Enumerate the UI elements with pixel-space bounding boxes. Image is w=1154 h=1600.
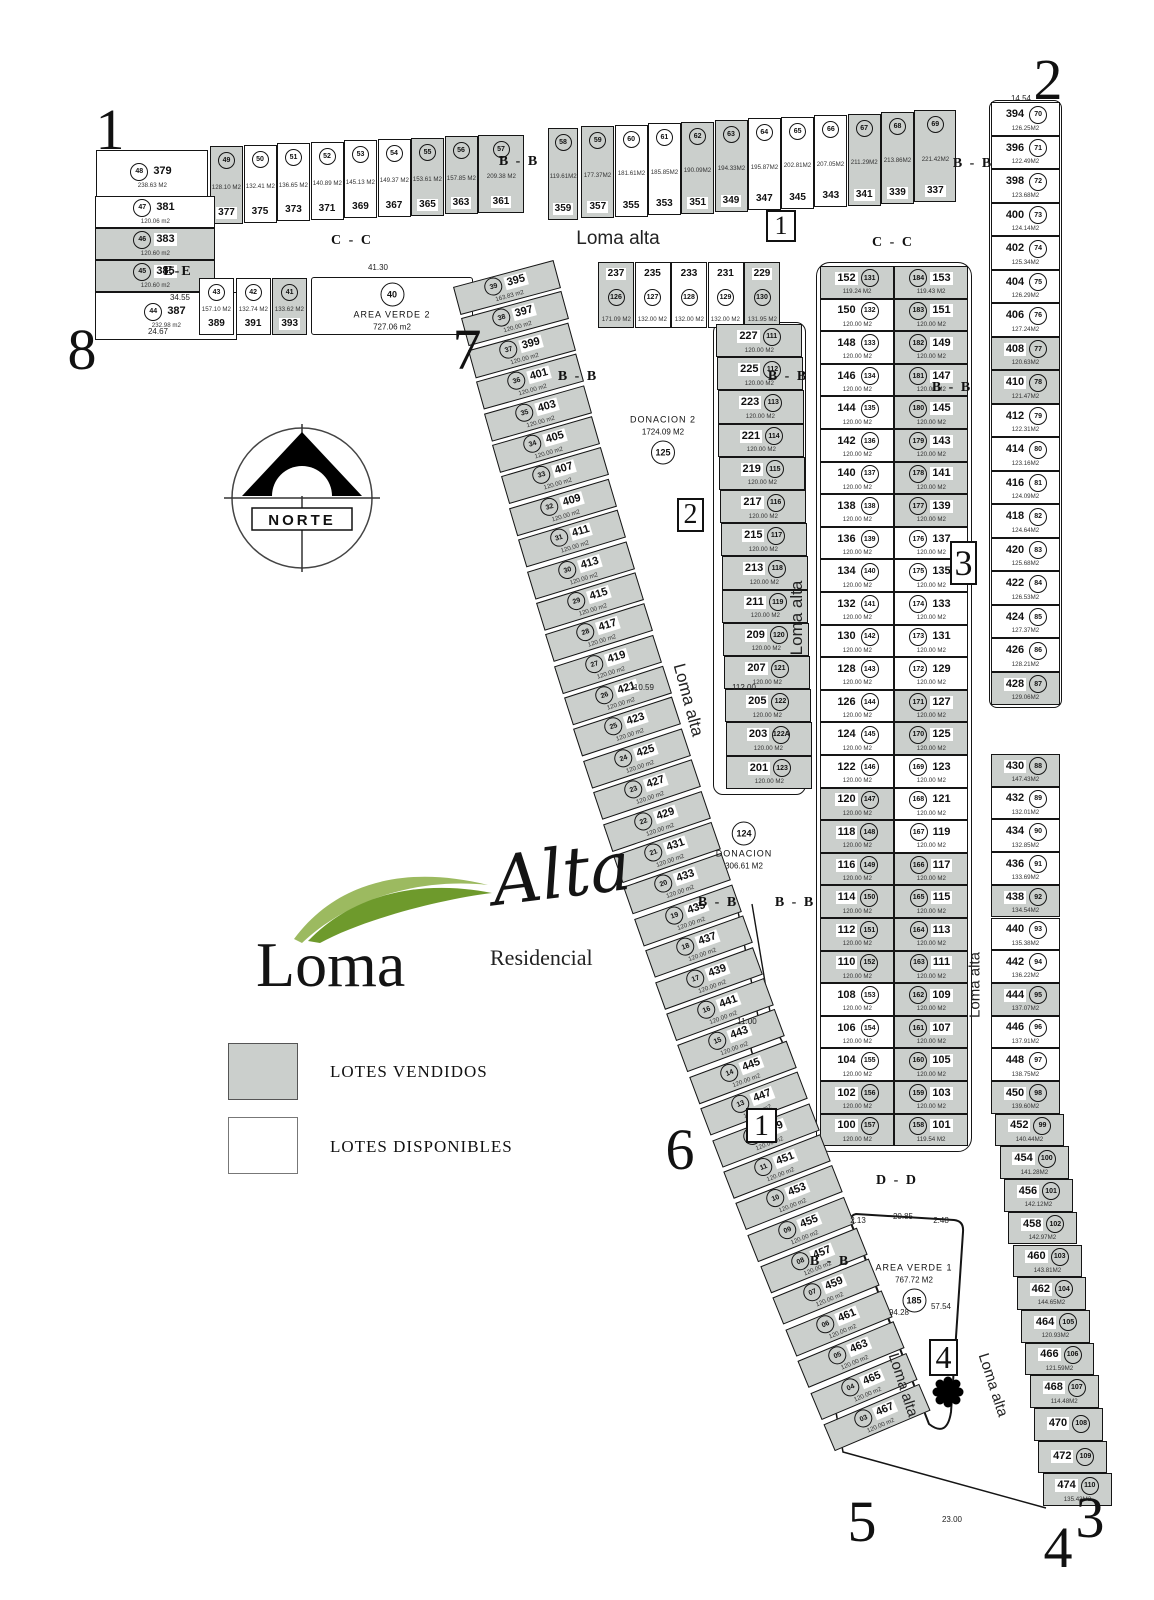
lot-number: 113 [931,924,953,937]
lot-124: 124145120.00 M2 [820,722,894,755]
street-label: Loma alta [967,952,984,1018]
lot-area: 120.00 M2 [916,1103,945,1110]
area-donacion: 124DONACION306.61 M2 [716,822,773,871]
lot-number: 130 [835,630,857,643]
lot-area: 120.00 M2 [916,647,945,654]
lot-number: 438 [1004,891,1026,904]
lot-221: 221114120.00 M2 [718,424,804,457]
lot-circle-id: 183 [909,302,927,320]
lot-402: 40274125.34M2 [991,236,1060,270]
lot-number: 116 [836,859,858,872]
lot-number: 120 [835,793,857,806]
lot-circle-id: 164 [910,921,928,939]
lot-area: 120.00 M2 [749,546,778,553]
lot-circle-id: 131 [861,269,879,287]
lot-number: 413 [577,554,602,573]
lot-circle-id: 116 [767,494,785,512]
lot-136: 136139120.00 M2 [820,527,894,560]
lot-area: 171.09 M2 [601,316,630,323]
lot-436: 43691133.69M2 [991,852,1060,885]
lot-area: 120.00 M2 [916,843,945,850]
lot-area: 131.95 M2 [747,316,776,323]
lot-233: 233128132.00 M2 [671,262,707,328]
lot-412: 41279122.31M2 [991,404,1060,438]
lot-424: 42485127.37M2 [991,605,1060,639]
lot-404: 40475126.29M2 [991,270,1060,304]
lot-circle-id: 134 [861,367,879,385]
lot-107: 161107120.00 M2 [894,1016,968,1049]
lot-circle-id: 173 [909,628,927,646]
lot-circle-id: 69 [927,116,944,133]
dimension-label: 94.28 [889,1309,909,1317]
lot-440: 44093135.38M2 [991,918,1060,951]
lot-number: 451 [773,1149,799,1169]
lot-area: 120.00 M2 [842,1136,871,1143]
lot-146: 146134120.00 M2 [820,364,894,397]
lot-area: 128.21M2 [1012,661,1039,668]
lot-area: 120.00 M2 [916,549,945,556]
lot-circle-id: 168 [909,791,927,809]
lot-circle-id: 92 [1029,888,1047,906]
lot-circle-id: 49 [218,152,235,169]
lot-area: 185.85M2 [651,169,678,176]
lot-circle-id: 73 [1029,206,1047,224]
lot-number: 410 [1004,376,1026,389]
lot-area: 114.48M2 [1051,1398,1078,1405]
lot-area: 120.00 M2 [842,940,871,947]
lot-area: 120.00 M2 [916,1006,945,1013]
lot-438: 43892134.54M2 [991,885,1060,918]
lot-area: 122.49M2 [1012,158,1039,165]
lot-number: 381 [154,201,176,214]
lot-area: 120.00 M2 [842,843,871,850]
section-label: B - B [953,157,993,171]
logo-residencial-text: Residencial [490,947,593,969]
lot-number: 207 [745,662,767,675]
lot-number: 349 [721,195,742,207]
lot-circle-id: 113 [764,394,782,412]
lot-area: 120.00 M2 [916,810,945,817]
lot-number: 458 [1021,1218,1043,1231]
lot-223: 223113120.00 M2 [718,390,804,423]
lot-circle-id: 42 [245,284,262,301]
lot-number: 441 [716,992,741,1012]
lot-number: 371 [317,203,338,215]
section-label: D - D [876,1174,918,1188]
lot-351: 62190.09M2351 [681,122,714,214]
lot-circle-id: 157 [861,1117,879,1135]
lot-number: 118 [836,826,858,839]
lot-number: 140 [835,467,857,480]
lot-140: 140137120.00 M2 [820,462,894,495]
lot-115: 165115120.00 M2 [894,885,968,918]
lot-468: 468107114.48M2 [1030,1375,1099,1408]
lot-circle-id: 138 [861,497,879,515]
lot-number: 108 [835,989,857,1002]
lot-number: 353 [654,198,675,210]
lot-area: 124.14M2 [1012,225,1039,232]
lot-circle-id: 153 [861,986,879,1004]
lot-426: 42686128.21M2 [991,638,1060,672]
lot-area: 120.00 M2 [842,1071,871,1078]
lot-number: 146 [835,370,857,383]
lot-area: 202.81M2 [784,162,811,169]
lot-number: 420 [1004,544,1026,557]
lot-number: 104 [835,1054,857,1067]
lot-number: 412 [1004,410,1026,423]
lot-circle-id: 76 [1029,307,1047,325]
lot-number: 205 [746,695,768,708]
lot-circle-id: 165 [910,889,928,907]
lot-circle-id: 174 [909,595,927,613]
lot-number: 343 [821,190,842,202]
lot-number: 442 [1004,956,1026,969]
lot-circle-id: 166 [910,856,928,874]
lot-circle-id: 91 [1029,855,1047,873]
lot-number: 345 [787,192,808,204]
lot-number: 416 [1004,477,1026,490]
lot-area: 132.41 M2 [245,183,274,190]
lot-number: 233 [679,268,700,280]
lot-number: 408 [1004,343,1026,356]
lot-area: 120.00 M2 [916,1038,945,1045]
area-size: 727.06 m2 [373,324,411,332]
lot-number: 422 [1004,577,1026,590]
lot-355: 60181.61M2355 [615,125,648,217]
lot-number: 414 [1004,443,1026,456]
lot-385: 45385120.60 m2 [95,260,215,292]
lot-area: 120.00 M2 [842,419,871,426]
lot-area: 120.93M2 [1042,1332,1069,1339]
lot-number: 144 [835,402,857,415]
lot-138: 138138120.00 M2 [820,494,894,527]
lot-area: 123.68M2 [1012,192,1039,199]
lot-area: 120.00 M2 [842,354,871,361]
lot-349: 63194.33M2349 [715,120,748,212]
lot-414: 41480123.16M2 [991,437,1060,471]
lot-number: 114 [836,891,858,904]
lot-231: 231129132.00 M2 [708,262,744,328]
lot-229: 229130131.95 M2 [744,262,780,328]
lot-134: 134140120.00 M2 [820,559,894,592]
lot-number: 225 [738,363,760,376]
lot-area: 120.00 M2 [842,451,871,458]
lot-number: 363 [451,197,472,209]
lot-number: 446 [1004,1021,1026,1034]
lot-373: 51136.65 M2373 [277,143,310,221]
lot-383: 46383120.60 m2 [95,228,215,260]
lot-area: 157.10 M2 [202,306,231,313]
lot-circle-id: 129 [717,289,734,306]
lot-116: 116149120.00 M2 [820,853,894,886]
lot-number: 437 [694,929,719,949]
logo-loma-text: Loma [256,933,405,997]
lot-circle-id: 63 [723,126,740,143]
lot-circle-id: 48 [130,163,148,181]
lot-circle-id: 156 [861,1084,879,1102]
section-label: B - B [558,370,598,384]
north-arrow: NORTE [222,418,382,578]
lot-circle-id: 99 [1033,1117,1051,1135]
lot-number: 447 [750,1086,776,1106]
lot-number: 429 [653,804,678,824]
lot-circle-id: 121 [771,660,789,678]
lot-area: 120.00 M2 [916,973,945,980]
lot-circle-id: 148 [860,823,878,841]
lot-circle-id: 178 [909,465,927,483]
lot-circle-id: 176 [909,530,927,548]
lot-circle-id: 150 [860,889,878,907]
area-name: DONACION 2 [630,416,696,425]
lot-area: 120.00 M2 [842,321,871,328]
lot-number: 221 [740,430,762,443]
street-label: Loma alta [787,581,807,656]
lot-number: 103 [930,1087,952,1100]
lot-circle-id: 54 [386,145,403,162]
lot-area: 120.00 M2 [755,778,784,785]
lot-circle-id: 97 [1029,1052,1047,1070]
lot-circle-id: 96 [1029,1019,1047,1037]
lot-circle-id: 155 [861,1052,879,1070]
lot-area: 119.24 M2 [843,288,872,295]
lot-area: 120.00 M2 [916,484,945,491]
lot-151: 183151120.00 M2 [894,299,968,332]
lot-number: 133 [930,598,952,611]
dimension-label: 2.13 [850,1217,866,1225]
lot-number: 401 [527,366,552,385]
dimension-label: 24.67 [148,328,168,336]
lot-circle-id: 56 [453,142,470,159]
lot-number: 419 [604,648,629,667]
lot-circle-id: 161 [909,1019,927,1037]
boxed-number: 1 [766,210,796,242]
lot-number: 111 [931,956,952,969]
section-label: B - B [768,370,808,384]
lot-circle-id: 90 [1029,823,1047,841]
lot-circle-id: 144 [861,693,879,711]
lot-circle-id: 181 [909,367,927,385]
lot-area: 120.00 M2 [916,614,945,621]
lot-area: 147.43M2 [1012,776,1039,783]
lot-area: 132.85M2 [1012,842,1039,849]
lot-area: 157.85 M2 [446,175,475,182]
area-size: 306.61 M2 [725,863,763,871]
lot-227: 227111120.00 M2 [716,324,802,357]
lot-450: 45098139.60M2 [991,1081,1060,1114]
lot-number: 149 [930,337,952,350]
lot-number: 134 [835,565,857,578]
lot-369: 53145.13 M2369 [344,140,377,218]
lot-circle-id: 60 [623,131,640,148]
lot-number: 456 [1017,1185,1039,1198]
lot-circle-id: 133 [861,334,879,352]
lot-circle-id: 122A [772,726,790,744]
lot-number: 397 [511,303,536,321]
lot-circle-id: 86 [1029,642,1047,660]
lot-number: 109 [930,989,952,1002]
lot-number: 123 [930,761,952,774]
lot-148: 148133120.00 M2 [820,331,894,364]
lot-area: 120.00 M2 [842,582,871,589]
lot-number: 391 [243,318,264,330]
lot-circle-id: 126 [608,289,625,306]
lot-circle-id: 143 [861,660,879,678]
lot-number: 455 [797,1211,823,1231]
lot-357: 59177.37M2357 [581,126,614,218]
lot-470: 470108 [1034,1408,1103,1441]
lot-area: 221.42M2 [922,156,949,163]
lot-number: 407 [551,460,576,479]
lot-111: 163111120.00 M2 [894,951,968,984]
lot-217: 217116120.00 M2 [720,490,806,523]
lot-number: 121 [930,793,952,806]
lot-circle-id: 106 [1064,1346,1082,1364]
lot-circle-id: 79 [1029,407,1047,425]
lot-area: 126.29M2 [1012,292,1039,299]
lot-number: 415 [586,585,611,604]
section-label: B - B [775,896,815,910]
lot-circle-id: 46 [133,231,151,249]
corner-number: 3 [1076,1489,1105,1547]
lot-circle-id: 105 [1059,1313,1077,1331]
lot-area: 120.00 M2 [750,579,779,586]
lot-area: 120.00 M2 [752,679,781,686]
lot-number: 339 [887,187,908,199]
lot-number: 131 [930,630,952,643]
lot-circle-id: 89 [1029,790,1047,808]
lot-circle-id: 182 [909,334,927,352]
boxed-number: 1 [746,1108,777,1143]
lot-381: 47381120.06 m2 [95,196,215,228]
lot-circle-id: 177 [909,497,927,515]
lot-circle-id: 160 [909,1052,927,1070]
lot-circle-id: 162 [909,986,927,1004]
lot-area: 137.91M2 [1012,1038,1039,1045]
lot-130: 130142120.00 M2 [820,625,894,658]
lot-circle-id: 154 [861,1019,879,1037]
street-label: Loma alta [669,661,708,738]
lot-circle-id: 152 [860,954,878,972]
lot-number: 400 [1004,209,1026,222]
lot-number: 417 [595,616,620,635]
lot-circle-id: 68 [889,118,906,135]
lot-circle-id: 88 [1029,757,1047,775]
lot-circle-id: 180 [909,400,927,418]
lot-452: 45299140.44M2 [995,1114,1064,1147]
lot-number: 112 [836,924,858,937]
lot-area: 119.43 M2 [917,288,946,295]
lot-458: 458102142.97M2 [1008,1212,1077,1245]
lot-345: 65202.81M2345 [781,117,814,209]
lot-area: 120.00 M2 [916,875,945,882]
lot-circle-id: 78 [1029,374,1047,392]
lot-area: 120.00 M2 [754,745,783,752]
lot-circle-id: 108 [1072,1415,1090,1433]
lot-141: 178141120.00 M2 [894,462,968,495]
area-name: AREA VERDE 1 [875,1264,952,1273]
lot-circle-id: 167 [910,823,928,841]
lot-125: 170125120.00 M2 [894,722,968,755]
lot-number: 396 [1004,142,1026,155]
lot-235: 235127132.00 M2 [635,262,671,328]
lot-circle-id: 81 [1029,474,1047,492]
lot-number: 424 [1004,611,1026,624]
plat-map: 48379238.63 M249128.10 M237750132.41 M23… [0,0,1154,1600]
lot-number: 431 [663,835,688,855]
lot-number: 151 [930,304,952,317]
lot-number: 375 [250,206,271,218]
lot-number: 119 [931,826,953,839]
lot-area: 128.10 M2 [212,185,241,192]
lot-number: 211 [744,596,766,609]
lot-number: 138 [835,500,857,513]
lot-circle-id: 66 [822,121,839,138]
lot-number: 141 [930,467,952,480]
lot-circle-id: 147 [861,791,879,809]
lot-circle-id: 72 [1029,173,1047,191]
street-label: Loma alta [975,1351,1012,1419]
lot-circle-id: 170 [909,726,927,744]
lot-area: 120.00 M2 [753,712,782,719]
dimension-label: 112.00 [732,684,756,692]
lot-circle-id: 50 [252,151,269,168]
legend-sold-label: LOTES VENDIDOS [330,1063,488,1080]
lot-number: 217 [741,496,763,509]
dimension-label: 20.85 [893,1213,913,1221]
lot-142: 142136120.00 M2 [820,429,894,462]
lot-area: 120.00 M2 [748,513,777,520]
lot-150: 150132120.00 M2 [820,299,894,332]
lot-number: 237 [606,268,627,280]
lot-circle-id: 65 [789,123,806,140]
legend-available-label: LOTES DISPONIBLES [330,1138,513,1155]
lot-108: 108153120.00 M2 [820,983,894,1016]
lot-363: 56157.85 M2363 [445,136,478,214]
lot-396: 39671122.49M2 [991,136,1060,170]
lot-number: 359 [553,203,574,215]
lot-area: 124.64M2 [1012,527,1039,534]
lot-circle-id: 145 [861,726,879,744]
lot-number: 379 [151,165,173,178]
lot-464: 464105120.93M2 [1021,1310,1090,1343]
area-size: 1724.09 M2 [642,429,684,437]
lot-number: 426 [1004,644,1026,657]
lot-area: 120.00 M2 [842,386,871,393]
lot-201: 201123120.00 M2 [726,756,812,789]
lot-number: 461 [834,1305,860,1326]
lot-102: 102156120.00 M2 [820,1081,894,1114]
lot-area: 125.34M2 [1012,259,1039,266]
lot-circle-id: 107 [1068,1379,1086,1397]
lot-number: 474 [1055,1479,1077,1492]
lot-number: 102 [835,1087,857,1100]
lot-number: 129 [930,663,952,676]
lot-circle-id: 80 [1029,441,1047,459]
lot-circle-id: 119 [769,593,787,611]
lot-number: 404 [1004,276,1026,289]
lot-circle-id: 137 [861,465,879,483]
lot-area: 120.00 M2 [842,777,871,784]
lot-number: 231 [715,268,736,280]
lot-circle-id: 44 [144,303,162,321]
lot-area: 120.00 M2 [842,647,871,654]
lot-number: 436 [1004,858,1026,871]
lot-circle-id: 74 [1029,240,1047,258]
lot-number: 215 [742,529,764,542]
lot-347: 64195.87M2347 [748,118,781,210]
lot-area: 132.74 M2 [239,306,268,313]
lot-area: 120.00 M2 [746,413,775,420]
